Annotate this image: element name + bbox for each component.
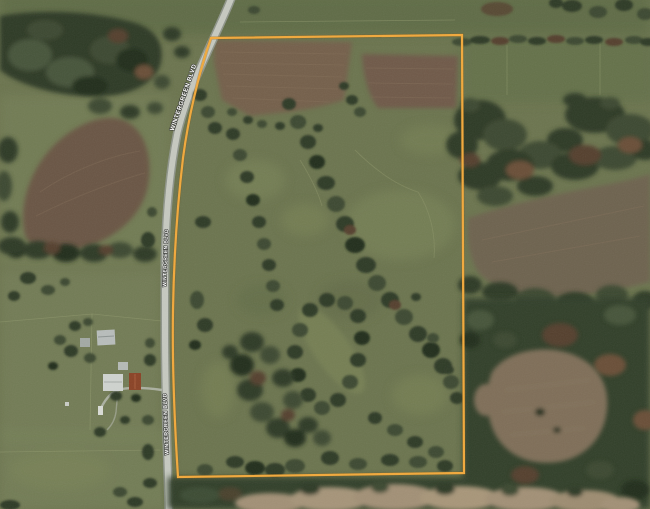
small-structure	[65, 402, 69, 406]
vehicle	[98, 406, 103, 415]
satellite-map[interactable]: WINTERGREEN BLVD WINTERGREEN BLVD WINTER…	[0, 0, 650, 509]
shed	[80, 338, 90, 347]
map-viewport[interactable]: WINTERGREEN BLVD WINTERGREEN BLVD WINTER…	[0, 0, 650, 509]
outbuilding	[118, 362, 128, 370]
barn-roof	[97, 330, 116, 346]
